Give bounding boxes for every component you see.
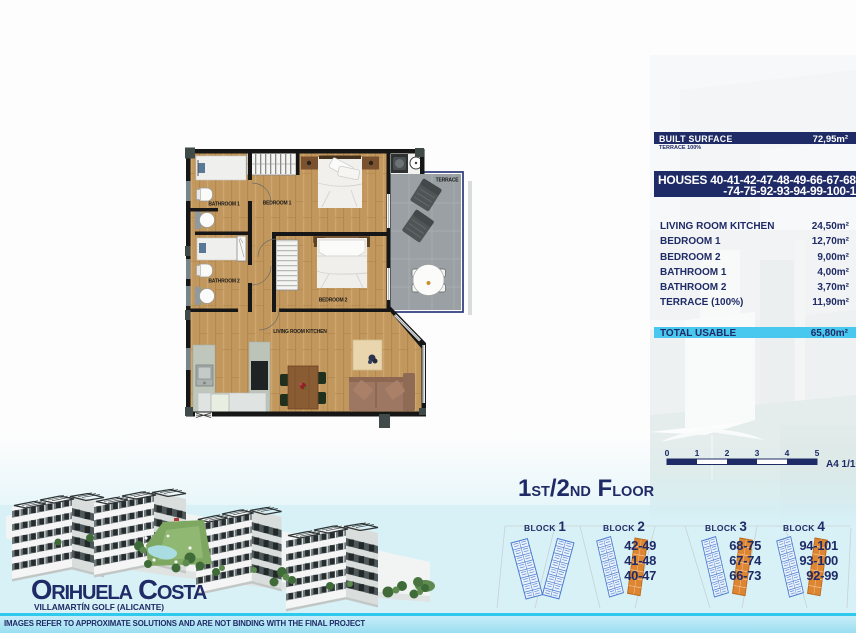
- svg-text:0: 0: [665, 448, 670, 458]
- svg-text:BEDROOM 2: BEDROOM 2: [319, 298, 348, 304]
- svg-text:3: 3: [755, 448, 760, 458]
- svg-text:TERRACE: TERRACE: [436, 178, 460, 184]
- svg-text:4: 4: [785, 448, 790, 458]
- svg-text:BATHROOM 2: BATHROOM 2: [208, 279, 240, 285]
- svg-text:A4 1/10: A4 1/10: [826, 459, 856, 470]
- svg-text:LIVING ROOM KITCHEN: LIVING ROOM KITCHEN: [273, 329, 327, 335]
- svg-text:BATHROOM 1: BATHROOM 1: [208, 202, 240, 208]
- svg-text:5: 5: [815, 448, 820, 458]
- svg-text:1: 1: [695, 448, 700, 458]
- svg-text:2: 2: [725, 448, 730, 458]
- svg-text:BEDROOM 1: BEDROOM 1: [263, 201, 292, 207]
